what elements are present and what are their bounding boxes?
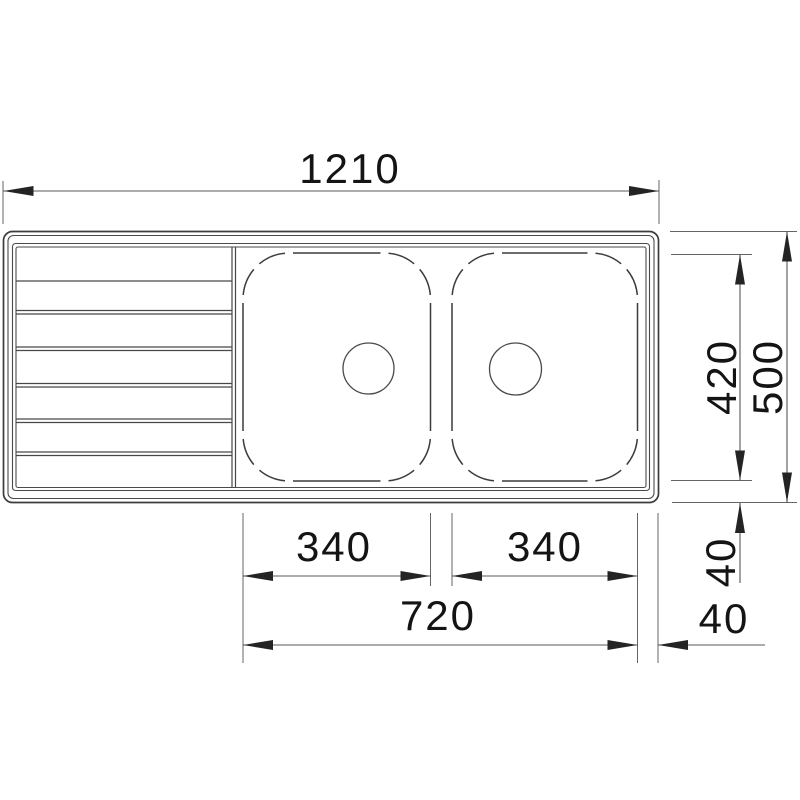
drain-hole-left <box>343 343 394 394</box>
dim-bowl-depth: 420 <box>671 255 752 481</box>
sink-outer-edge <box>4 232 659 503</box>
dim-label-bowl-left-width: 340 <box>296 523 372 570</box>
arrowhead-left <box>658 640 688 650</box>
dim-edge-offset-bottom: 40 <box>697 503 745 587</box>
dim-label-edge-offset-bottom: 40 <box>697 537 744 588</box>
arrowhead-left <box>243 571 273 581</box>
sink-rim-line <box>8 236 654 499</box>
dimensions: 1210 420 500 40 <box>3 145 797 663</box>
technical-drawing: 1210 420 500 40 <box>0 0 800 800</box>
sink-drawing-canvas: 1210 420 500 40 <box>0 0 800 800</box>
dim-label-edge-offset-right: 40 <box>699 595 750 642</box>
arrowhead-left <box>243 640 273 650</box>
sink-plan-view <box>4 232 659 503</box>
dim-edge-offset-right: 40 <box>658 595 765 650</box>
arrowhead-right <box>629 186 659 196</box>
bowl-right-outline <box>452 253 638 481</box>
dim-bowl-right-width: 340 <box>452 523 638 581</box>
arrowhead-down <box>735 451 745 481</box>
dim-label-bowl-depth: 420 <box>698 339 745 415</box>
bowl-left-outline <box>243 253 431 481</box>
dim-bowls-overall-width: 720 <box>243 592 638 650</box>
dim-label-overall-depth: 500 <box>744 339 791 415</box>
arrowhead-right <box>401 571 431 581</box>
bowls <box>243 253 638 481</box>
dim-label-bowls-overall-width: 720 <box>400 592 476 639</box>
arrowhead-up <box>735 255 745 285</box>
drain-hole-right <box>490 343 542 395</box>
arrowhead-up <box>782 232 792 262</box>
dim-overall-width: 1210 <box>3 145 659 224</box>
arrowhead-left <box>4 186 34 196</box>
dim-bowl-left-width: 340 <box>243 523 431 581</box>
arrowhead-right <box>608 571 638 581</box>
dim-label-overall-width: 1210 <box>299 145 400 192</box>
arrowhead-right <box>608 640 638 650</box>
arrowhead-down <box>782 473 792 503</box>
arrowhead-left <box>452 571 482 581</box>
dim-label-bowl-right-width: 340 <box>507 523 583 570</box>
drainboard <box>16 247 236 488</box>
arrowhead-up <box>735 503 745 533</box>
